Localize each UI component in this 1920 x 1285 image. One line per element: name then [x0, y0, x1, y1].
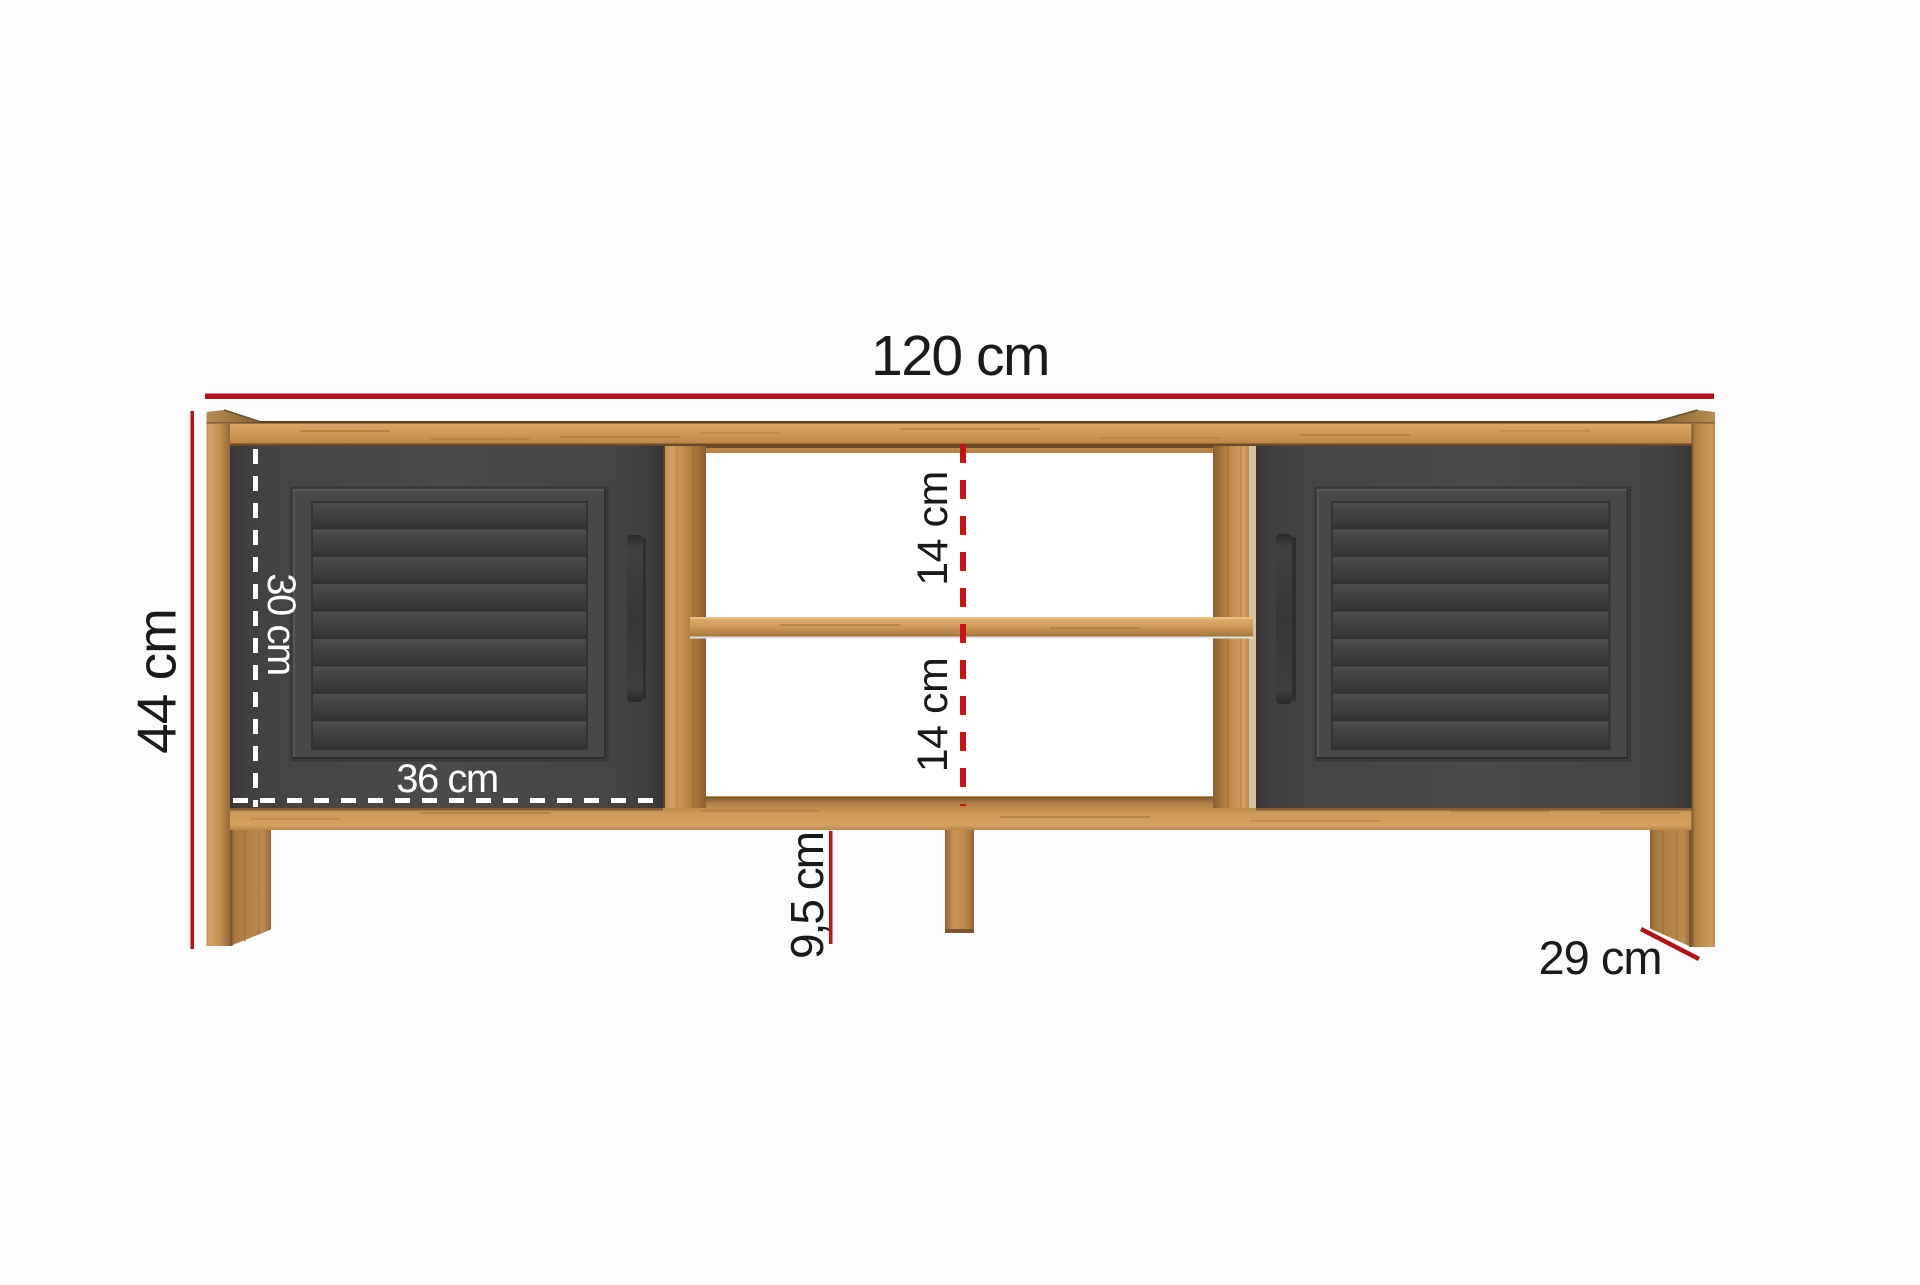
svg-text:14 cm: 14 cm [909, 471, 957, 586]
svg-text:30 cm: 30 cm [259, 573, 303, 674]
svg-text:44 cm: 44 cm [126, 609, 188, 754]
svg-text:9,5 cm: 9,5 cm [781, 833, 833, 959]
svg-text:36 cm: 36 cm [396, 757, 497, 801]
svg-text:29 cm: 29 cm [1539, 931, 1662, 984]
svg-text:120 cm: 120 cm [871, 324, 1049, 388]
svg-text:14 cm: 14 cm [909, 658, 957, 773]
